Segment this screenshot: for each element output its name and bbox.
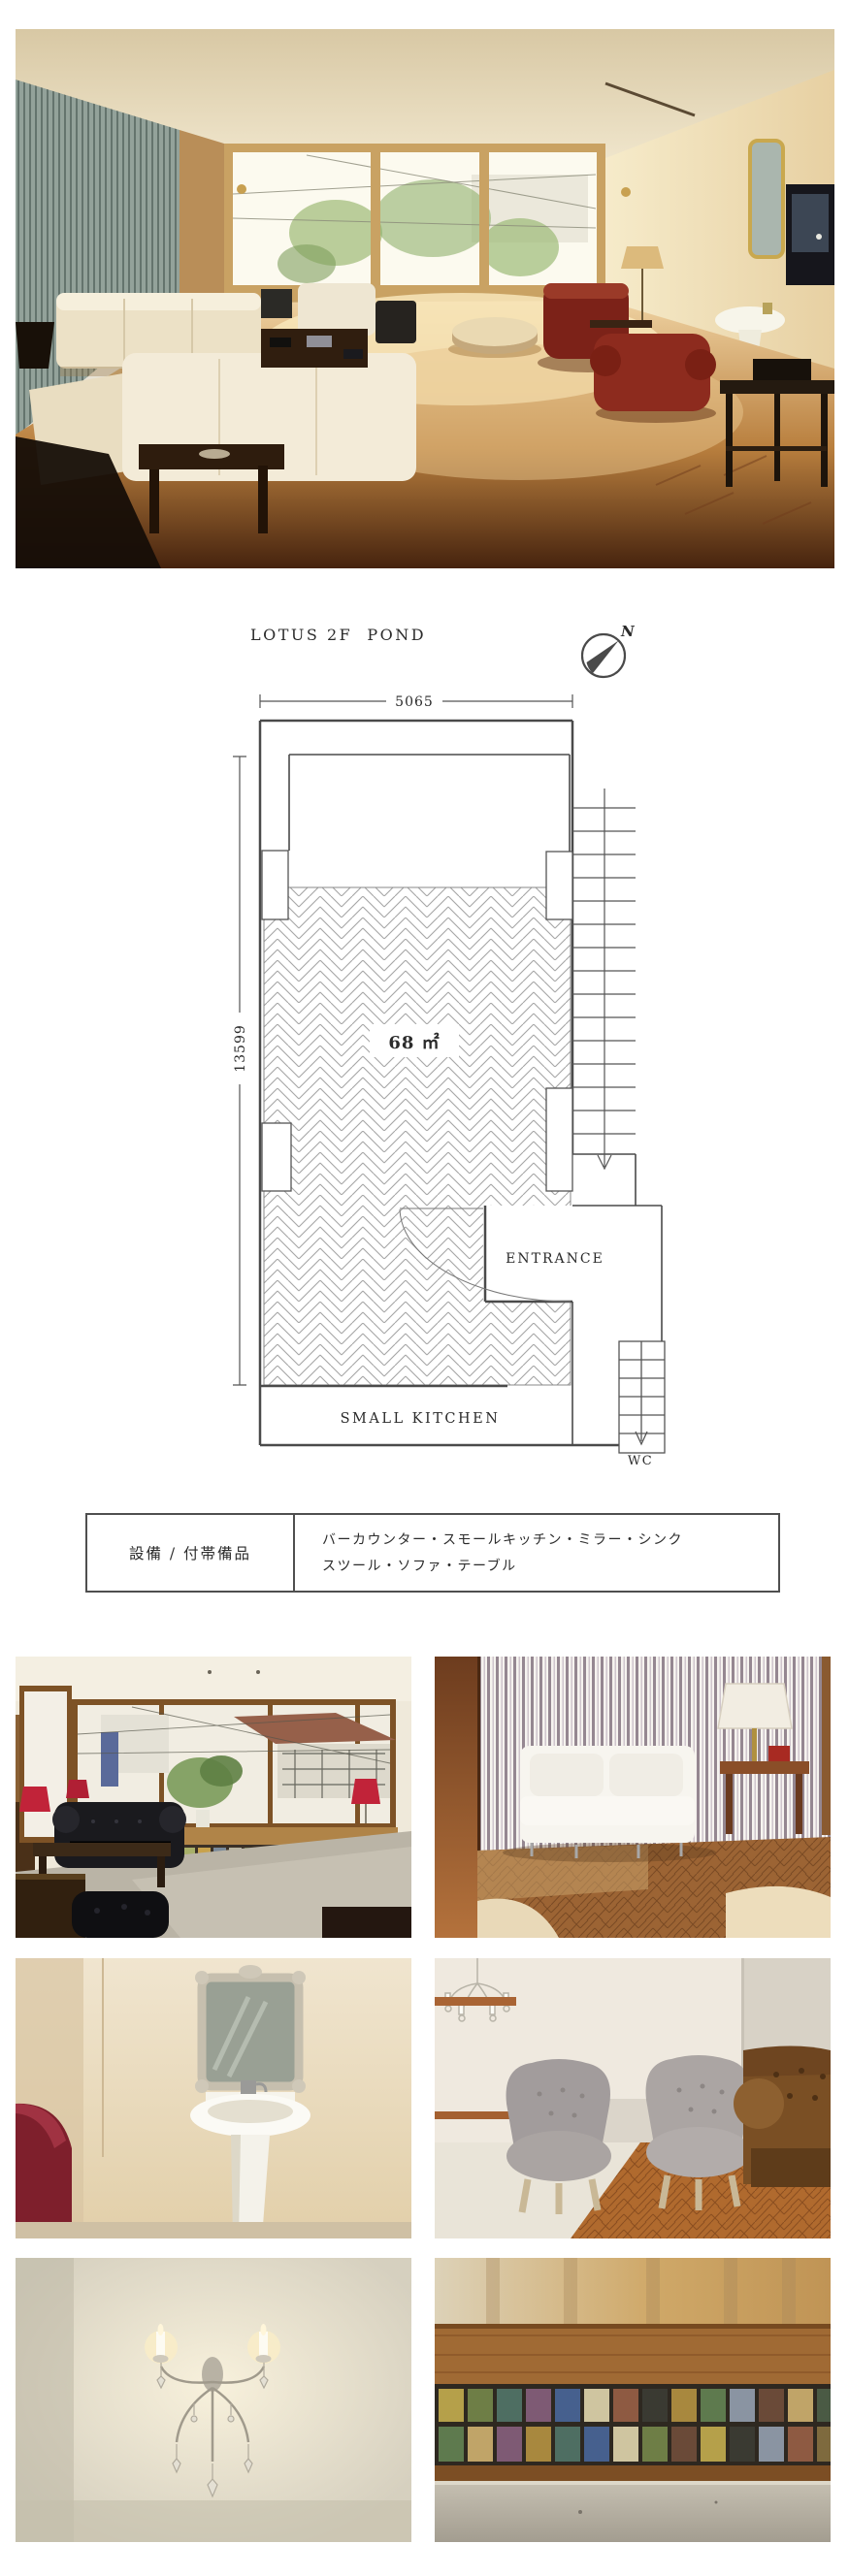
brown-chesterfield-sofa [734, 2046, 831, 2188]
floor-plan: N 5065 13599 [0, 582, 849, 1513]
wood-rail [435, 2111, 510, 2119]
wall-sconce-icon [237, 184, 246, 194]
herringbone-floor [264, 887, 571, 1385]
black-leather-pouf [72, 1891, 169, 1938]
equipment-line-2: スツール・ソファ・テーブル [322, 1554, 759, 1580]
listing-page: LOTUS 2F POND N 5065 13599 [0, 0, 849, 2576]
photo-row3-left [16, 2258, 411, 2542]
photo-row3-right [435, 2258, 831, 2542]
wall-sconce-icon [621, 187, 631, 197]
coffee-table [261, 329, 368, 368]
hero-photo-art [16, 29, 834, 568]
photo-row2-right [435, 1958, 831, 2238]
wood-rail-lower [435, 2465, 831, 2481]
ornate-mirror [195, 1965, 306, 2093]
wood-shelf [435, 1997, 516, 2006]
ornate-mirror [750, 141, 783, 257]
wood-column [435, 1657, 477, 1938]
kitchen-label: SMALL KITCHEN [341, 1411, 501, 1427]
hero-photo [16, 29, 834, 568]
spec-table-header: 設備 / 付帯備品 [87, 1515, 295, 1591]
white-sofa [520, 1746, 695, 1858]
photo-row1-right [435, 1657, 831, 1938]
spec-table-items: バーカウンター・スモールキッチン・ミラー・シンク スツール・ソファ・テーブル [295, 1515, 778, 1591]
photo-row3-left-art [16, 2258, 411, 2542]
entrance-label: ENTRANCE [506, 1251, 604, 1267]
photo-row2-left-art [16, 1958, 411, 2238]
equipment-line-1: バーカウンター・スモールキッチン・ミラー・シンク [322, 1528, 759, 1554]
blue-banner-outside [101, 1732, 118, 1787]
photo-row3-right-art [435, 2258, 831, 2542]
wc-staircase [619, 1341, 665, 1453]
foreground-cushion-right [726, 1886, 831, 1938]
dimension-left-label: 13599 [233, 1024, 248, 1073]
photo-row1-right-art [435, 1657, 831, 1938]
area-label: 68 ㎡ [388, 1032, 440, 1053]
dimension-top-label: 5065 [395, 694, 434, 710]
compass-north-label: N [620, 623, 636, 640]
round-ottoman [448, 317, 541, 358]
spec-table: 設備 / 付帯備品 バーカウンター・スモールキッチン・ミラー・シンク スツール・… [85, 1513, 780, 1593]
table-lamp-dark [16, 322, 54, 369]
black-chesterfield-sofa [52, 1802, 186, 1868]
photo-row2-right-art [435, 1958, 831, 2238]
wc-label: WC [628, 1454, 653, 1468]
compass-icon: N [582, 623, 636, 677]
photo-row2-left [16, 1958, 411, 2238]
photo-row1-left [16, 1657, 411, 1938]
main-staircase [572, 789, 636, 1169]
photo-row1-left-art [16, 1657, 411, 1938]
pedestal-sink [715, 306, 785, 334]
table-corner [322, 1907, 411, 1938]
